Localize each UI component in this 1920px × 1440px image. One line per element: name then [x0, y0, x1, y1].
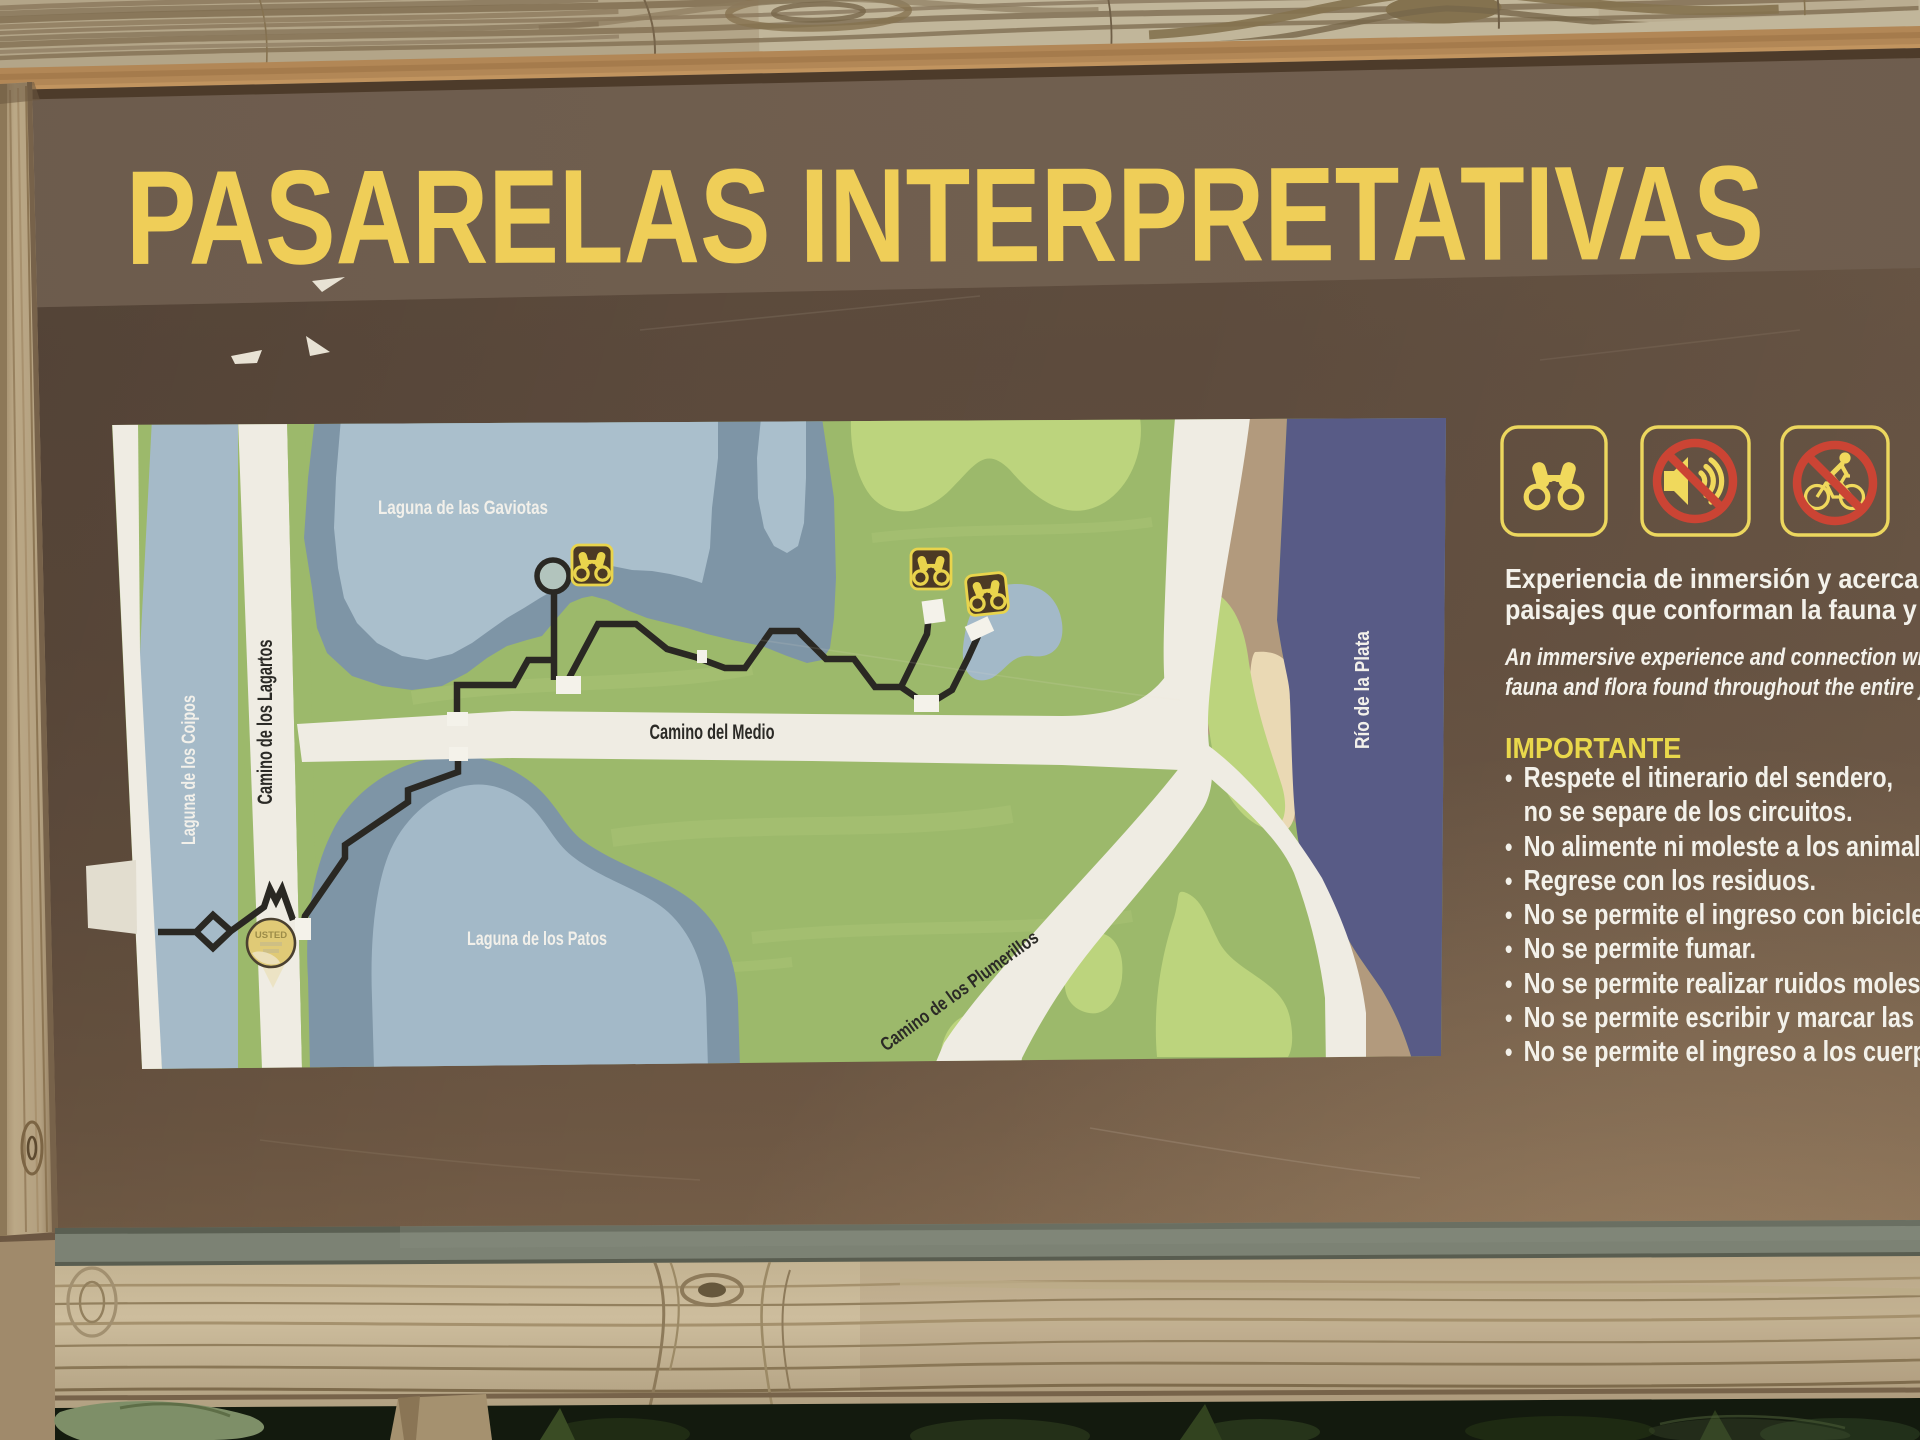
svg-text:PASARELAS INTERPRETATIVAS: PASARELAS INTERPRETATIVAS: [126, 139, 1764, 293]
svg-text:Laguna de las Gaviotas: Laguna de las Gaviotas: [378, 498, 548, 519]
svg-text:Laguna de los Coipos: Laguna de los Coipos: [179, 695, 200, 845]
svg-text:USTED: USTED: [255, 930, 287, 941]
svg-text:Laguna de los Patos: Laguna de los Patos: [467, 929, 607, 950]
svg-text:Camino del Medio: Camino del Medio: [650, 721, 775, 744]
svg-text:Río de la Plata: Río de la Plata: [1352, 630, 1374, 749]
svg-text:Camino de los Lagartos: Camino de los Lagartos: [254, 640, 277, 805]
